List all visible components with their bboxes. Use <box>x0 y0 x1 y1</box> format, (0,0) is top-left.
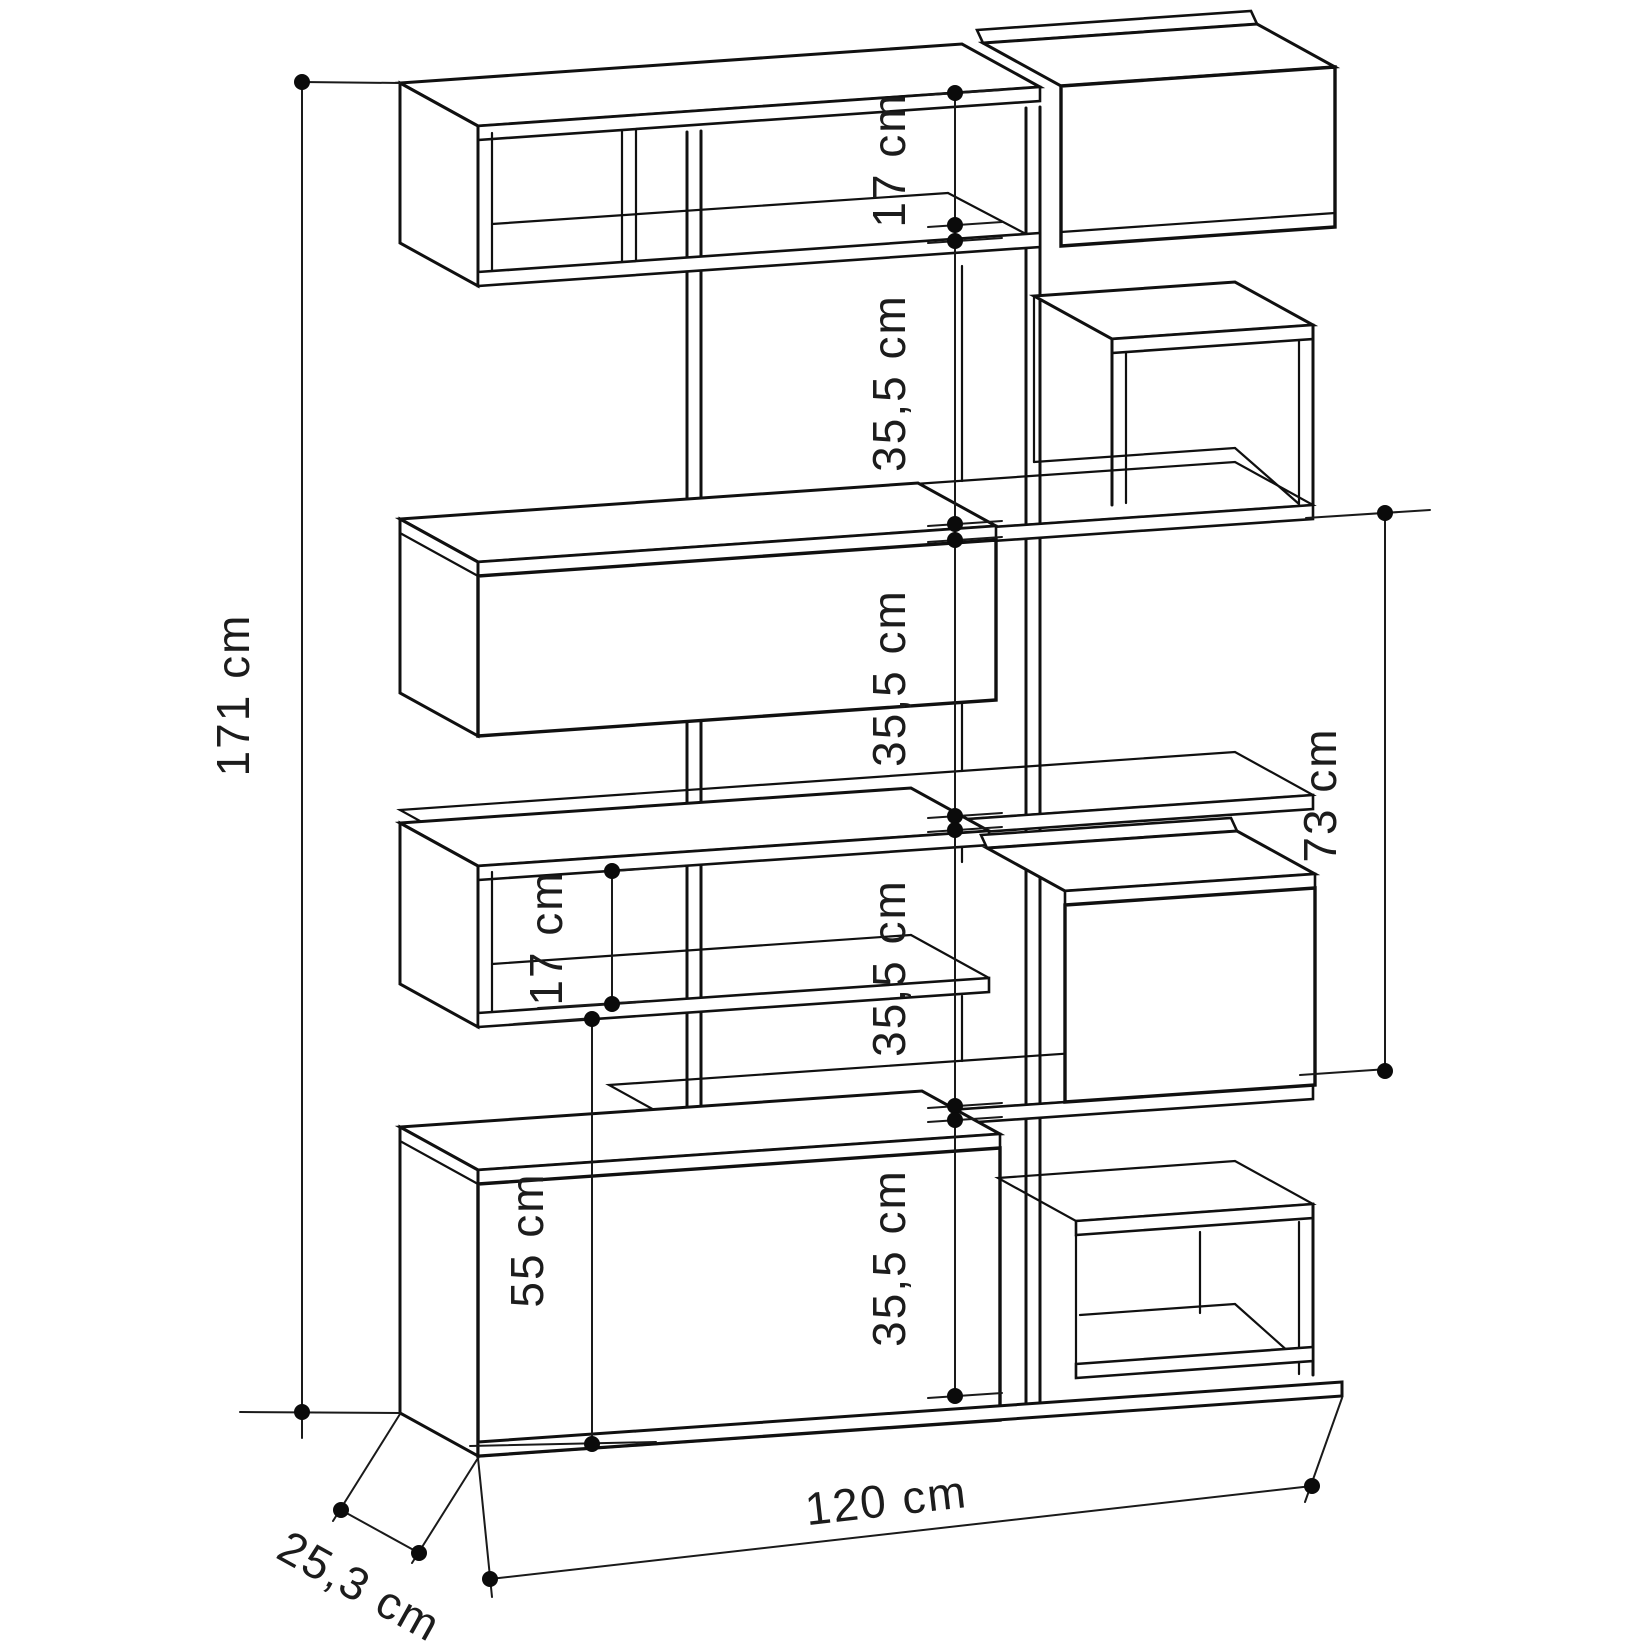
drawing-canvas: 171 cm 17 cm 35,5 cm 35,5 cm 35,5 cm 35,… <box>0 0 1648 1648</box>
label-left-lower-height: 55 cm <box>501 1172 553 1307</box>
box-right-level4-closed <box>981 818 1315 1102</box>
label-bay-height-4: 35,5 cm <box>863 1169 915 1347</box>
dim-overall-height: 171 cm <box>207 74 400 1438</box>
label-right-column-height: 73 cm <box>1294 727 1346 862</box>
box-top-right-closed <box>977 11 1335 246</box>
label-overall-height: 171 cm <box>207 614 259 777</box>
label-bay-height-1: 35,5 cm <box>863 294 915 472</box>
label-top-inner-height: 17 cm <box>863 92 915 227</box>
dim-left-inner-17: 17 cm <box>520 863 684 1012</box>
label-left-box-inner-height: 17 cm <box>520 870 572 1005</box>
label-bay-height-3: 35,5 cm <box>863 879 915 1057</box>
label-overall-width: 120 cm <box>802 1465 970 1535</box>
box-top-left-open <box>400 44 1040 286</box>
label-bay-height-2: 35,5 cm <box>863 589 915 767</box>
bookcase-dimension-drawing: 171 cm 17 cm 35,5 cm 35,5 cm 35,5 cm 35,… <box>0 0 1648 1648</box>
dim-depth: 25,3 cm <box>269 1414 478 1648</box>
label-overall-depth: 25,3 cm <box>269 1520 450 1648</box>
box-right-level5-open <box>998 1161 1313 1378</box>
box-right-level2-open <box>1034 282 1313 505</box>
